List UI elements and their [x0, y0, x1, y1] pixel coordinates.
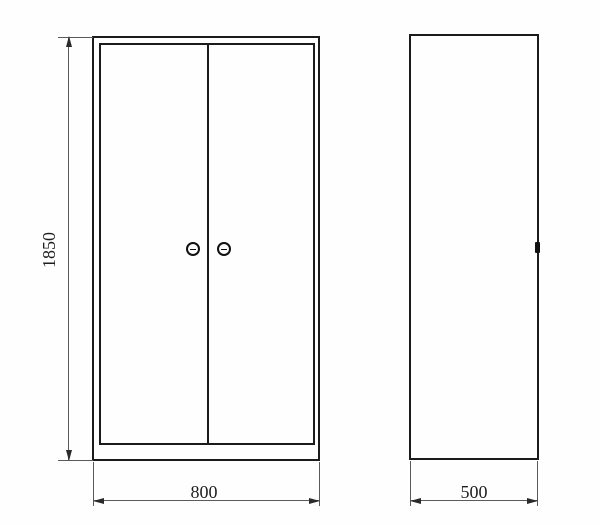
door-divider-line	[207, 43, 209, 445]
arrow-up-icon	[66, 36, 72, 47]
arrow-right-icon	[527, 498, 538, 504]
width-dimension-label: 800	[191, 483, 218, 501]
depth-dimension-label: 500	[461, 483, 488, 501]
handle-slot	[190, 249, 196, 251]
side-view-outline	[409, 34, 539, 460]
height-extension-line-top	[58, 37, 93, 38]
height-dimension-label: 1850	[40, 232, 58, 268]
handle-slot	[221, 249, 227, 251]
side-view-handle-icon	[535, 242, 540, 253]
arrow-right-icon	[309, 498, 320, 504]
arrow-left-icon	[410, 498, 421, 504]
left-door-handle-icon	[186, 242, 200, 256]
height-dimension-line	[68, 38, 69, 460]
height-extension-line-bottom	[58, 460, 93, 461]
right-door-handle-icon	[217, 242, 231, 256]
cabinet-technical-drawing: 1850 800 500	[0, 0, 600, 524]
arrow-down-icon	[66, 450, 72, 461]
arrow-left-icon	[93, 498, 104, 504]
